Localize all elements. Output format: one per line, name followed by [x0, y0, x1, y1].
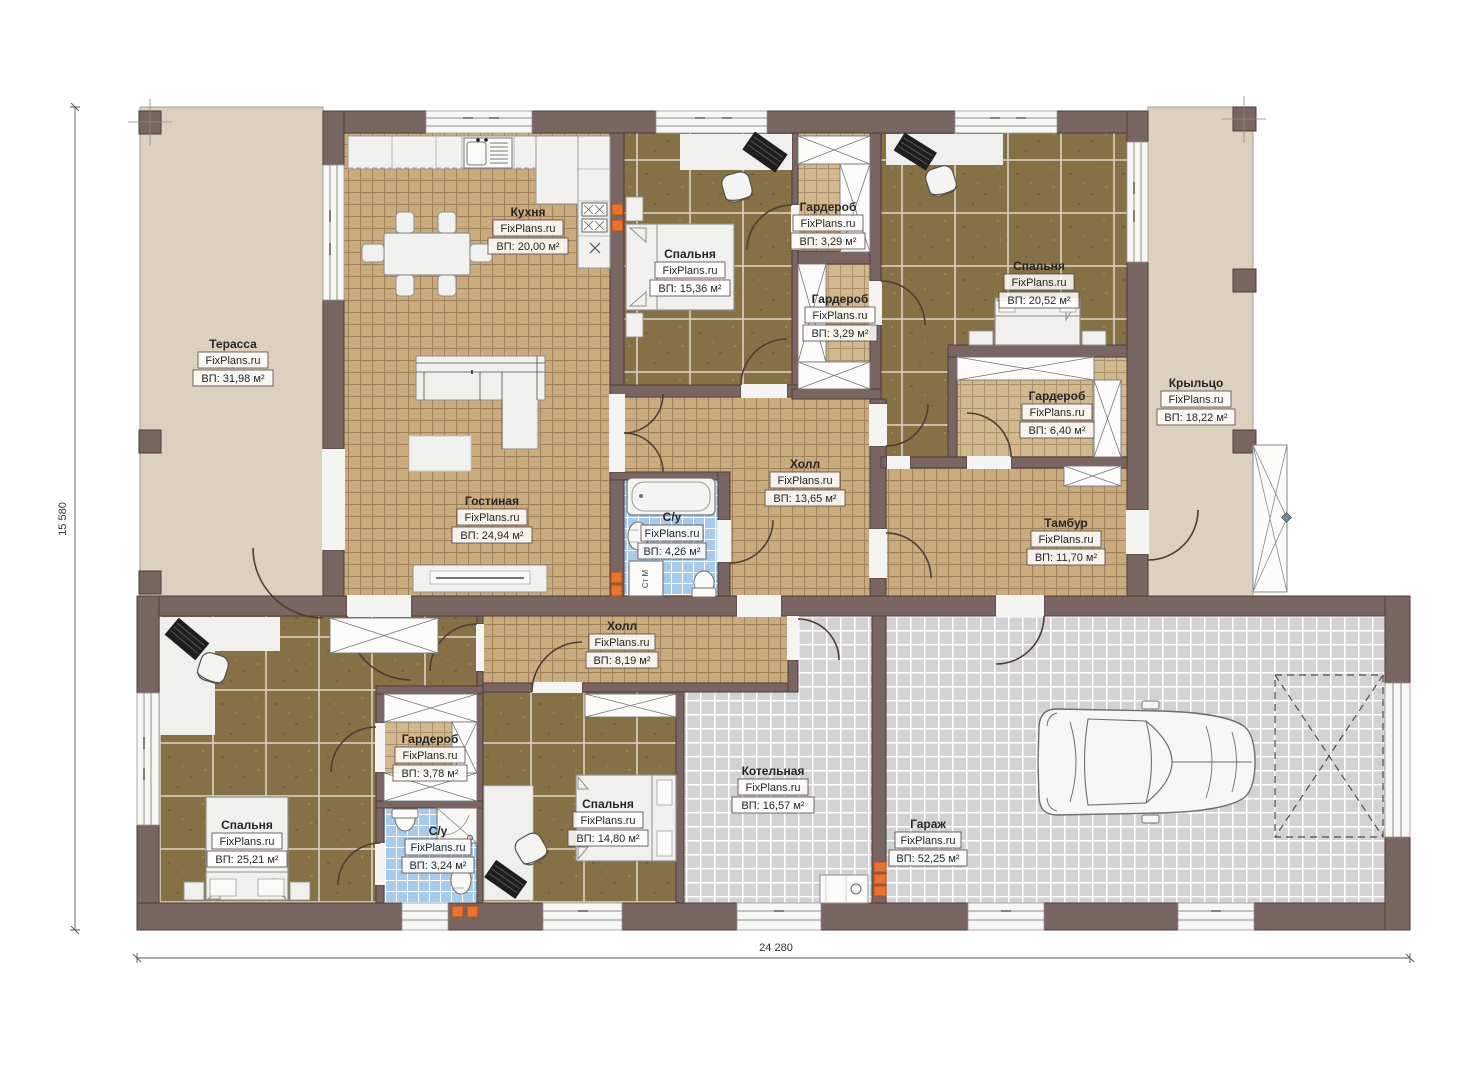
svg-text:ВП: 20,52 м²: ВП: 20,52 м²	[1007, 295, 1071, 307]
svg-text:Гостиная: Гостиная	[465, 494, 519, 508]
svg-text:Спальня: Спальня	[664, 247, 716, 261]
svg-text:15 580: 15 580	[57, 502, 69, 536]
svg-text:ВП: 3,29 м²: ВП: 3,29 м²	[811, 328, 868, 340]
svg-text:ВП: 16,57 м²: ВП: 16,57 м²	[741, 800, 805, 812]
svg-text:ВП: 6,40 м²: ВП: 6,40 м²	[1028, 425, 1085, 437]
svg-text:Гардероб: Гардероб	[812, 292, 869, 306]
svg-text:Кухня: Кухня	[510, 205, 545, 219]
svg-text:ВП: 20,00 м²: ВП: 20,00 м²	[496, 241, 560, 253]
svg-text:Спальня: Спальня	[582, 797, 634, 811]
svg-text:FixPlans.ru: FixPlans.ru	[644, 528, 699, 540]
svg-text:FixPlans.ru: FixPlans.ru	[500, 223, 555, 235]
svg-text:ВП: 13,65 м²: ВП: 13,65 м²	[773, 493, 837, 505]
svg-text:ВП: 25,21 м²: ВП: 25,21 м²	[215, 854, 279, 866]
svg-text:FixPlans.ru: FixPlans.ru	[580, 815, 635, 827]
svg-text:Холл: Холл	[607, 619, 637, 633]
svg-text:FixPlans.ru: FixPlans.ru	[219, 836, 274, 848]
svg-text:FixPlans.ru: FixPlans.ru	[1168, 394, 1223, 406]
svg-text:FixPlans.ru: FixPlans.ru	[1011, 277, 1066, 289]
svg-text:FixPlans.ru: FixPlans.ru	[900, 835, 955, 847]
svg-text:ВП: 14,80 м²: ВП: 14,80 м²	[576, 833, 640, 845]
svg-text:ВП: 24,94 м²: ВП: 24,94 м²	[460, 530, 524, 542]
svg-text:ВП: 31,98 м²: ВП: 31,98 м²	[201, 373, 265, 385]
svg-text:FixPlans.ru: FixPlans.ru	[594, 637, 649, 649]
svg-text:Гардероб: Гардероб	[402, 732, 459, 746]
svg-text:ВП: 8,19 м²: ВП: 8,19 м²	[593, 655, 650, 667]
svg-text:FixPlans.ru: FixPlans.ru	[745, 782, 800, 794]
svg-text:Крыльцо: Крыльцо	[1169, 376, 1224, 390]
svg-text:ВП: 15,36 м²: ВП: 15,36 м²	[658, 283, 722, 295]
svg-text:Терасса: Терасса	[209, 337, 257, 351]
svg-text:С/у: С/у	[429, 824, 448, 838]
svg-text:ВП: 3,29 м²: ВП: 3,29 м²	[799, 236, 856, 248]
svg-text:С/у: С/у	[663, 510, 682, 524]
svg-text:ВП: 3,78 м²: ВП: 3,78 м²	[401, 768, 458, 780]
svg-text:Гараж: Гараж	[910, 817, 946, 831]
svg-text:FixPlans.ru: FixPlans.ru	[410, 842, 465, 854]
svg-text:FixPlans.ru: FixPlans.ru	[1029, 407, 1084, 419]
svg-text:FixPlans.ru: FixPlans.ru	[205, 355, 260, 367]
svg-text:Котельная: Котельная	[742, 764, 805, 778]
svg-text:ВП: 11,70 м²: ВП: 11,70 м²	[1035, 552, 1098, 564]
svg-text:FixPlans.ru: FixPlans.ru	[800, 218, 855, 230]
svg-text:ВП: 52,25 м²: ВП: 52,25 м²	[896, 853, 960, 865]
svg-text:ВП: 18,22 м²: ВП: 18,22 м²	[1164, 412, 1228, 424]
svg-text:ВП: 4,26 м²: ВП: 4,26 м²	[643, 546, 700, 558]
svg-text:Гардероб: Гардероб	[1029, 389, 1086, 403]
svg-text:Спальня: Спальня	[221, 818, 273, 832]
svg-text:Спальня: Спальня	[1013, 259, 1065, 273]
svg-text:FixPlans.ru: FixPlans.ru	[402, 750, 457, 762]
svg-text:Холл: Холл	[790, 457, 820, 471]
svg-text:Тамбур: Тамбур	[1044, 516, 1088, 530]
svg-text:Ст М: Ст М	[641, 570, 650, 589]
svg-text:FixPlans.ru: FixPlans.ru	[812, 310, 867, 322]
svg-text:ВП: 3,24 м²: ВП: 3,24 м²	[409, 860, 466, 872]
svg-text:FixPlans.ru: FixPlans.ru	[662, 265, 717, 277]
svg-text:FixPlans.ru: FixPlans.ru	[1038, 534, 1093, 546]
svg-text:FixPlans.ru: FixPlans.ru	[777, 475, 832, 487]
svg-text:Гардероб: Гардероб	[800, 200, 857, 214]
svg-text:FixPlans.ru: FixPlans.ru	[464, 512, 519, 524]
svg-text:24 280: 24 280	[759, 942, 793, 954]
